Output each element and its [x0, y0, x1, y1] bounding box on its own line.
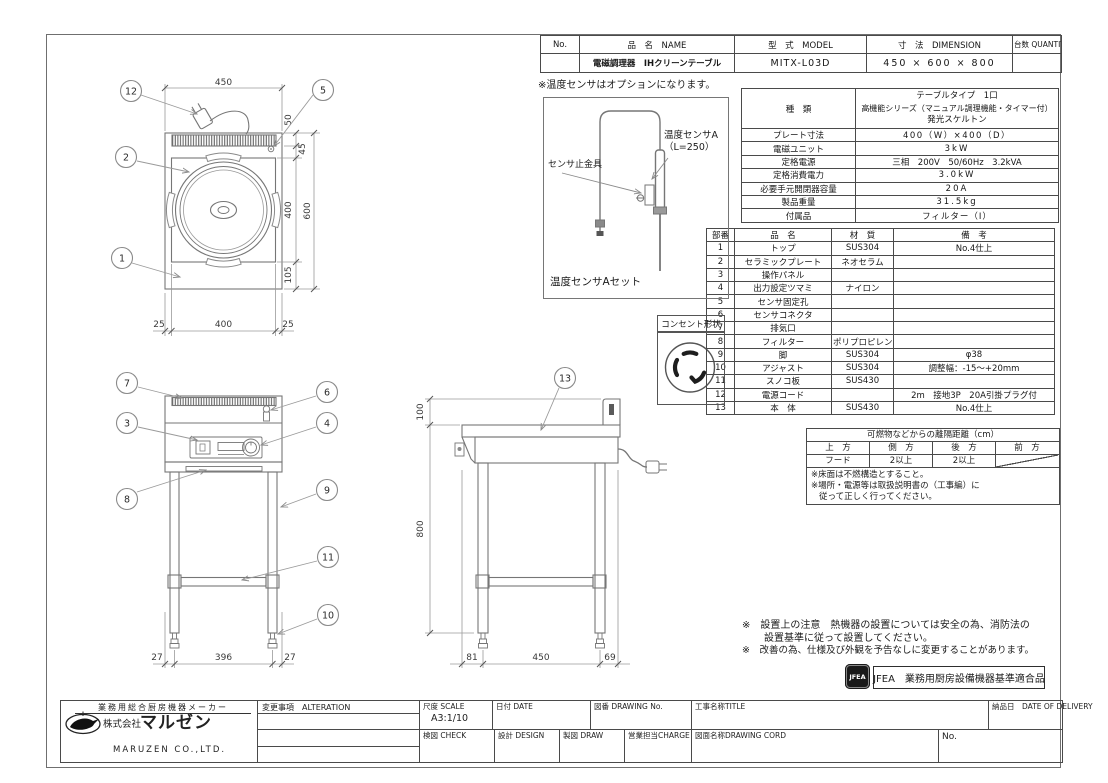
- clearance-col: 側 方: [870, 442, 933, 454]
- side-crossbar: [489, 578, 593, 587]
- clearance-val-empty: [996, 455, 1058, 467]
- item-no: [541, 54, 580, 73]
- spec-value: 三相 200V 50/60Hz 3.2kVA: [856, 155, 1059, 168]
- spec-value: 3kW: [856, 142, 1059, 155]
- side-connector: [455, 443, 464, 456]
- clearance-note2: ※場所・電源等は取扱説明書の（工事編）に: [811, 482, 980, 492]
- install-note-line3: ※ 改善の為、仕様及び外観を予告なしに変更することがあります。: [742, 646, 1034, 657]
- title-block: 業務用総合厨房機器メーカー 株式会社 マルゼン MARUZEN CO.,LTD.…: [60, 700, 1063, 763]
- outlet-box: [657, 331, 725, 405]
- clearance-col: 後 方: [933, 442, 996, 454]
- delivery-label: 納品日 DATE OF DELIVERY: [992, 703, 1093, 712]
- jfea-logo: JFEA: [845, 664, 870, 689]
- balloon-5: 5: [313, 80, 334, 101]
- power-cord-plan: [210, 111, 249, 134]
- alteration-label: 変更事項 ALTERATION: [262, 703, 350, 712]
- balloons: 12 5 2 1 7 6 3 4 8 9 11 10 13: [112, 80, 576, 626]
- svg-text:8: 8: [124, 495, 130, 506]
- clearance-val: フード: [807, 455, 870, 467]
- parts-col-name: 品 名: [735, 229, 832, 242]
- spec-label: 定格電源: [742, 155, 856, 168]
- clearance-title: 可燃物などからの離隔距離（cm）: [807, 429, 1059, 441]
- svg-text:6: 6: [324, 388, 330, 399]
- svg-text:396: 396: [215, 653, 232, 663]
- balloon-13: 13: [555, 368, 576, 389]
- item-dimension: 450 × 600 × 800: [867, 54, 1013, 73]
- svg-text:10: 10: [322, 611, 334, 622]
- clearance-note1: ※床面は不燃構造とすること。: [811, 471, 928, 481]
- svg-text:13: 13: [559, 374, 571, 385]
- svg-text:800: 800: [416, 520, 426, 537]
- svg-text:2: 2: [123, 153, 129, 164]
- parts-row: 13本 体SUS430No.4仕上: [707, 401, 1055, 414]
- header-col-dimension: 寸 法 DIMENSION: [867, 36, 1013, 54]
- parts-row: 11スノコ板SUS430: [707, 375, 1055, 388]
- sensor-label-a2: （L=250）: [664, 143, 714, 154]
- svg-text:27: 27: [284, 653, 295, 663]
- clearance-table: 可燃物などからの離隔距離（cm） 上 方 側 方 後 方 前 方 フード 2以上…: [806, 428, 1060, 505]
- svg-text:105: 105: [284, 266, 294, 283]
- header-col-no: No.: [541, 36, 580, 54]
- plan-vent-band: [172, 135, 276, 146]
- parts-row: 2セラミックプレートネオセラム: [707, 255, 1055, 268]
- svg-text:27: 27: [151, 653, 162, 663]
- charge-label: 営業担当CHARGE: [628, 732, 690, 741]
- parts-row: 9脚SUS304φ38: [707, 348, 1055, 361]
- svg-text:400: 400: [284, 201, 294, 218]
- balloon-4: 4: [317, 413, 338, 434]
- sensor-box: [543, 97, 729, 299]
- check-label: 検図 CHECK: [423, 732, 466, 741]
- svg-text:11: 11: [322, 553, 334, 564]
- parts-row: 1トップSUS304No.4仕上: [707, 242, 1055, 255]
- svg-text:45: 45: [298, 143, 308, 154]
- company-prefix: 株式会社: [103, 720, 141, 731]
- balloon-6: 6: [317, 382, 338, 403]
- scale-label: 尺度 SCALE: [423, 703, 464, 712]
- plan-dimensions: 450 50 45 400 105 600 25 400 25: [153, 78, 320, 336]
- spec-label: 製品重量: [742, 195, 856, 208]
- parts-row: 3操作パネル: [707, 268, 1055, 281]
- spec-kind-value: テーブルタイプ 1口 高機能シリーズ（マニュアル調理機能・タイマー付） 発光スケ…: [856, 89, 1059, 129]
- svg-text:25: 25: [153, 320, 164, 330]
- drawing-sheet: 450 50 45 400 105 600 25 400 25: [0, 0, 1108, 783]
- jfea-certification-text: JFEA 業務用厨房設備機器基準適合品: [873, 666, 1045, 689]
- item-name: 電磁調理器 IHクリーンテーブル: [580, 54, 735, 73]
- header-col-model: 型 式 MODEL: [735, 36, 867, 54]
- svg-text:5: 5: [320, 86, 326, 97]
- scale-value: A3:1/10: [431, 714, 468, 725]
- clearance-val: 2以上: [870, 455, 933, 467]
- svg-text:600: 600: [303, 202, 313, 219]
- svg-text:25: 25: [282, 320, 293, 330]
- spec-label: 定格消費電力: [742, 169, 856, 182]
- front-vent-band: [172, 398, 276, 406]
- control-panel: [190, 437, 262, 458]
- parts-row: 5センサ固定孔: [707, 295, 1055, 308]
- parts-row: 7排気口: [707, 322, 1055, 335]
- clearance-note3: 従って正しく行ってください。: [819, 493, 937, 503]
- parts-row: 4出力設定ツマミナイロン: [707, 282, 1055, 295]
- front-right-leg: [268, 472, 277, 633]
- date-label: 日付 DATE: [496, 703, 533, 712]
- svg-text:3: 3: [124, 419, 130, 430]
- svg-text:69: 69: [604, 653, 616, 663]
- drawing-no-label: 図番 DRAWING No.: [594, 703, 663, 712]
- balloon-2: 2: [116, 147, 137, 168]
- parts-row: 6センサコネクタ: [707, 308, 1055, 321]
- front-view: [165, 396, 282, 648]
- balloon-11: 11: [318, 547, 339, 568]
- clearance-col: 上 方: [807, 442, 870, 454]
- filter-slot: [186, 467, 262, 472]
- balloon-12: 12: [121, 81, 142, 102]
- balloon-3: 3: [117, 413, 138, 434]
- side-front-leg: [478, 463, 488, 633]
- balloon-1: 1: [112, 248, 133, 269]
- spec-table: 種 類 テーブルタイプ 1口 高機能シリーズ（マニュアル調理機能・タイマー付） …: [741, 88, 1059, 223]
- balloon-8: 8: [117, 489, 138, 510]
- spec-value: 20A: [856, 182, 1059, 195]
- spec-label: 必要手元開閉器容量: [742, 182, 856, 195]
- front-adjust-feet: [170, 633, 277, 648]
- side-back-leg: [595, 463, 605, 633]
- spec-value: フィルター（I）: [856, 209, 1059, 222]
- spec-label: プレート寸法: [742, 129, 856, 142]
- drawing-header-table: No. 品 名 NAME 型 式 MODEL 寸 法 DIMENSION 台数 …: [540, 35, 1062, 73]
- balloon-9: 9: [317, 480, 338, 501]
- title-label: 工事名称TITLE: [695, 703, 745, 712]
- spec-label: 付属品: [742, 209, 856, 222]
- sensor-option-note: ※温度センサはオプションになります。: [538, 80, 715, 92]
- parts-table: 部番 品 名 材 質 備 考 1トップSUS304No.4仕上 2セラミックプレ…: [706, 228, 1055, 415]
- balloon-10: 10: [318, 605, 339, 626]
- svg-text:400: 400: [215, 320, 232, 330]
- power-cord-side: [618, 449, 647, 467]
- parts-row: 8フィルターポリプロピレン: [707, 335, 1055, 348]
- install-note-line2: 設置基準に従って設置してください。: [764, 633, 933, 645]
- parts-col-material: 材 質: [832, 229, 894, 242]
- side-view: [455, 399, 667, 648]
- parts-col-note: 備 考: [894, 229, 1055, 242]
- spec-value: 31.5kg: [856, 195, 1059, 208]
- svg-text:450: 450: [215, 78, 232, 88]
- spec-kind-label: 種 類: [742, 89, 856, 129]
- sensor-label-a: 温度センサA: [664, 131, 718, 142]
- sensor-bracket-label: センサ止金具: [548, 160, 602, 170]
- svg-text:4: 4: [324, 419, 330, 430]
- draw-label: 製図 DRAW: [563, 732, 603, 741]
- header-col-quantity: 台数 QUANTITY: [1013, 36, 1062, 54]
- install-note-line1: ※ 設置上の注意 熱機器の設置については安全の為、消防法の: [742, 620, 1030, 632]
- sensor-caption: 温度センサAセット: [550, 276, 641, 288]
- side-adjust-feet: [479, 633, 605, 648]
- clearance-col: 前 方: [996, 442, 1058, 454]
- power-plug-side: [646, 461, 667, 473]
- svg-text:7: 7: [124, 379, 130, 390]
- svg-text:12: 12: [125, 87, 137, 98]
- front-left-leg: [170, 472, 179, 633]
- front-crossbar: [181, 578, 266, 587]
- front-dimensions: 27 396 27: [151, 612, 295, 668]
- clearance-val: 2以上: [933, 455, 996, 467]
- sensor-connector: [263, 406, 269, 421]
- company-name-en: MARUZEN CO.,LTD.: [113, 746, 226, 756]
- design-label: 設計 DESIGN: [498, 732, 544, 741]
- balloon-7: 7: [117, 373, 138, 394]
- parts-row: 12電源コード2m 接地3P 20A引掛プラグ付: [707, 388, 1055, 401]
- svg-text:1: 1: [119, 254, 125, 265]
- parts-row: 10アジャストSUS304調整幅：-15～+20mm: [707, 361, 1055, 374]
- spec-label: 電磁ユニット: [742, 142, 856, 155]
- svg-text:9: 9: [324, 486, 330, 497]
- header-col-name: 品 名 NAME: [580, 36, 735, 54]
- svg-text:450: 450: [532, 653, 549, 663]
- no-label: No.: [942, 732, 957, 742]
- spec-value: 400（W）×400（D）: [856, 129, 1059, 142]
- spec-value: 3.0kW: [856, 169, 1059, 182]
- drawing-cord-label: 図面名称DRAWING CORD: [695, 732, 786, 741]
- plate-center-logo: [211, 202, 237, 219]
- svg-text:100: 100: [416, 403, 426, 420]
- plan-view: [165, 102, 282, 289]
- item-model: MITX-L03D: [735, 54, 867, 73]
- svg-text:50: 50: [284, 114, 294, 126]
- svg-text:81: 81: [466, 653, 477, 663]
- company-name-logo: マルゼン: [140, 714, 212, 734]
- item-quantity: [1013, 54, 1062, 73]
- power-plug-plan: [189, 102, 213, 130]
